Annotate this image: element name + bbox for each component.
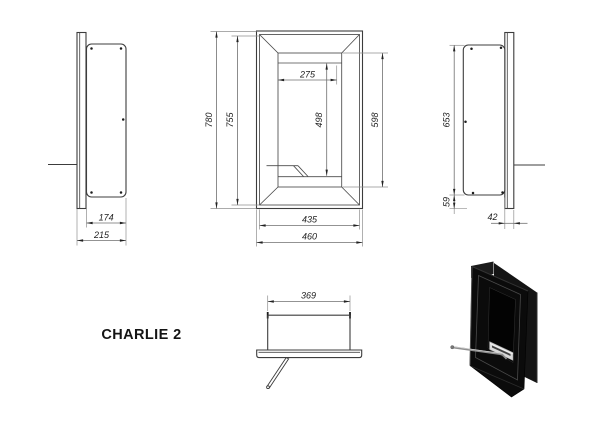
dim-label: 598: [370, 112, 380, 127]
mounting-flange: [505, 33, 514, 209]
dim-label: 780: [204, 112, 214, 127]
dimension-755: 755: [225, 36, 260, 205]
dim-label: 755: [225, 112, 235, 128]
dimension-598: 598: [343, 53, 388, 187]
burner-box: [268, 315, 350, 350]
dim-label: 653: [442, 112, 452, 127]
screw-dot: [501, 191, 504, 194]
bottom-view: 369: [257, 290, 362, 388]
poker-rod: [267, 358, 289, 389]
burner-lid: [267, 166, 309, 177]
technical-drawing-canvas: 174 215 780: [0, 0, 600, 432]
screw-dot: [120, 47, 123, 50]
dim-label: 435: [302, 214, 318, 224]
dimension-653: 653: [442, 45, 465, 195]
dim-label: 460: [302, 231, 317, 241]
screw-dot: [500, 47, 503, 50]
screw-dot: [472, 192, 475, 195]
dimension-369: 369: [268, 290, 350, 311]
screw-dot: [122, 118, 125, 121]
screw-dot: [470, 48, 473, 51]
dim-label: 369: [301, 290, 316, 300]
base-ledge: [257, 350, 362, 358]
mounting-flange: [77, 33, 86, 209]
left-side-view: 174 215: [48, 33, 126, 246]
outer-frame: [257, 31, 363, 209]
dimension-59: 59: [442, 195, 467, 214]
dim-label: 59: [442, 197, 452, 207]
dim-label: 498: [314, 112, 324, 127]
screw-dot: [120, 191, 123, 194]
dimension-275: 275: [278, 66, 337, 85]
dim-label: 42: [487, 212, 497, 222]
casing-box: [463, 45, 505, 195]
screw-dot: [464, 120, 467, 123]
frame-lip: [260, 35, 360, 206]
dim-label: 174: [99, 212, 114, 222]
casing-box: [87, 44, 127, 197]
right-side-view: 653 59 42: [442, 33, 545, 230]
screw-dot: [90, 191, 93, 194]
product-photo-3d: [451, 262, 537, 398]
dimension-435: 435: [260, 210, 360, 230]
dim-label: 275: [299, 69, 316, 79]
dim-label: 215: [93, 230, 110, 240]
screw-dot: [90, 47, 93, 50]
front-view: 780 755 275 498 598 435: [204, 31, 388, 247]
product-title: CHARLIE 2: [101, 327, 181, 343]
drawing-svg: 174 215 780: [0, 0, 600, 432]
